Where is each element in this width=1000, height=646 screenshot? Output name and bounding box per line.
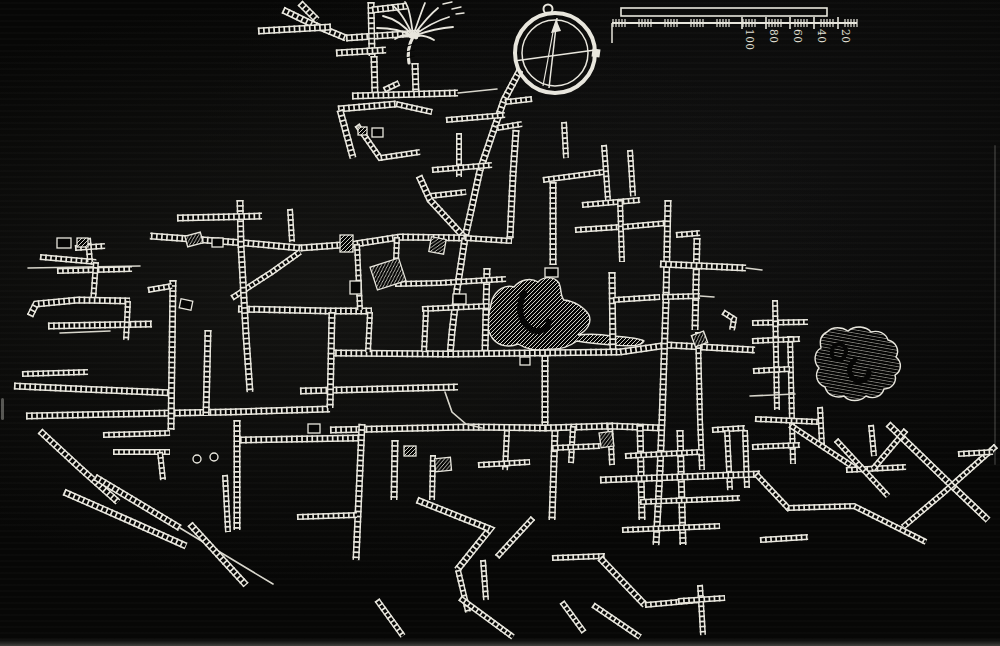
street-segment — [206, 330, 208, 415]
street-segment — [374, 56, 375, 96]
street-segment — [600, 474, 760, 480]
street-segment — [103, 433, 170, 435]
building — [308, 424, 320, 433]
street-segment — [510, 175, 513, 238]
scale-bar-outline — [621, 8, 827, 16]
street-segment — [330, 312, 332, 408]
street-segment — [180, 528, 273, 584]
street-segment — [660, 264, 746, 268]
street-segment — [543, 172, 604, 180]
street-segment — [593, 605, 640, 637]
compass-rose-icon — [514, 5, 601, 94]
street-segment — [171, 280, 173, 430]
east-hill-blob — [815, 327, 900, 401]
street-segment — [752, 322, 808, 323]
street-segment — [752, 339, 800, 341]
street-segment — [22, 372, 88, 374]
building — [404, 446, 416, 456]
street-segment — [505, 99, 532, 102]
building — [185, 232, 203, 247]
street-segment — [545, 426, 662, 428]
circle-mark — [210, 453, 218, 461]
building — [179, 299, 193, 310]
street-segment — [422, 306, 488, 309]
street-segment — [630, 150, 633, 196]
street-segment — [513, 130, 516, 175]
map-page: 10080604020 — [0, 0, 1000, 646]
street-segment — [340, 110, 353, 158]
street-segment — [678, 598, 725, 601]
street-segment — [377, 600, 403, 636]
street-segment — [600, 558, 645, 605]
street-segment — [60, 331, 110, 333]
street-segment — [465, 238, 512, 241]
street-segment — [460, 598, 513, 637]
street-segment — [290, 209, 292, 242]
street-segment — [240, 200, 241, 246]
street-segment — [356, 424, 362, 560]
street-segment — [483, 560, 486, 600]
street-segment — [625, 452, 700, 456]
street-segment — [190, 524, 246, 585]
street-segment — [662, 296, 700, 297]
street-segment — [753, 369, 790, 371]
street-segment — [676, 233, 700, 235]
map-canvas: 10080604020 — [0, 0, 1000, 646]
street-segment — [871, 425, 874, 456]
street-segment — [775, 300, 777, 410]
street-segment — [241, 246, 250, 392]
street-segment — [746, 268, 762, 270]
compass-needle-arrowhead — [551, 19, 561, 33]
street-segment — [357, 244, 360, 310]
street-segment — [48, 324, 152, 326]
street-segment — [622, 223, 668, 227]
scale-label: 60 — [792, 29, 804, 43]
street-segment — [372, 6, 407, 10]
street-segment — [552, 556, 605, 558]
street-segment — [958, 452, 993, 454]
street-segment — [238, 309, 372, 311]
street-segment — [352, 93, 458, 96]
scale-bar: 10080604020 — [612, 8, 857, 51]
building — [545, 268, 558, 277]
street-segment — [750, 394, 795, 396]
street-segment — [338, 104, 396, 109]
street-segment — [752, 445, 800, 447]
street-segment — [727, 430, 730, 490]
building — [77, 238, 88, 247]
street-segment — [297, 515, 357, 517]
street-segment — [225, 475, 228, 532]
building — [520, 357, 530, 365]
street-segment — [126, 301, 128, 340]
scale-label: 100 — [744, 29, 756, 51]
street-segment — [150, 236, 300, 248]
street-segment — [582, 200, 640, 205]
street-segment — [497, 518, 533, 557]
street-segment — [368, 312, 370, 352]
street-segment — [873, 430, 906, 469]
street-segment — [745, 430, 747, 488]
street-segment — [478, 462, 530, 465]
street-segment — [432, 455, 433, 500]
street-segment — [820, 407, 822, 446]
building — [434, 457, 451, 471]
street-segment — [564, 122, 566, 158]
street-segment — [562, 602, 584, 632]
street-segment — [384, 83, 399, 90]
building — [358, 127, 367, 135]
street-segment — [604, 145, 608, 200]
street-segment — [330, 352, 620, 354]
scale-label: 40 — [816, 29, 828, 43]
street-segment — [336, 50, 386, 53]
street-segment — [14, 386, 175, 393]
street-segment — [640, 425, 642, 520]
circle-mark — [193, 455, 201, 463]
street-segment — [760, 537, 808, 540]
street-segment — [723, 312, 734, 330]
street-segment — [30, 300, 130, 316]
street-segment — [620, 200, 622, 262]
street-segment — [660, 200, 668, 470]
street-segment — [430, 192, 466, 196]
street-segment — [695, 238, 697, 330]
street-segment — [622, 526, 720, 530]
street-segment — [756, 474, 790, 510]
street-segment — [300, 387, 458, 391]
building — [57, 238, 71, 248]
street-segment — [700, 296, 714, 297]
street-segment — [712, 428, 745, 430]
scale-label: 80 — [768, 29, 780, 43]
street-segment — [700, 585, 703, 635]
street-segment — [640, 498, 740, 502]
street-segment — [620, 345, 755, 352]
street-segment — [417, 500, 490, 570]
building — [453, 294, 466, 304]
street-segment — [160, 452, 163, 480]
building — [372, 128, 383, 137]
street-segment — [575, 227, 620, 230]
building — [340, 235, 353, 252]
street-segment — [458, 89, 497, 93]
street-segment — [613, 297, 660, 300]
street-segment — [440, 279, 506, 283]
building — [599, 431, 614, 448]
street-segment — [497, 124, 522, 128]
street-segment — [552, 430, 555, 520]
street-segment — [395, 283, 440, 284]
street-segment — [93, 262, 96, 302]
building — [429, 237, 446, 254]
central-pond-blob — [487, 278, 644, 351]
street-segment — [755, 419, 820, 422]
street-segment — [419, 176, 465, 238]
street-segment — [148, 286, 172, 290]
street-segment — [258, 27, 331, 31]
building — [212, 238, 223, 247]
street-segment — [445, 392, 482, 428]
building — [350, 281, 361, 294]
scale-label: 20 — [840, 29, 852, 43]
street-segment — [552, 446, 600, 448]
street-segment — [396, 104, 432, 112]
street-segment — [40, 431, 118, 502]
street-segment — [26, 409, 330, 416]
street-segment — [177, 216, 262, 218]
street-segment — [424, 310, 426, 352]
street-segment — [888, 424, 988, 520]
street-segment — [240, 438, 360, 440]
street-segment — [612, 272, 613, 355]
street-segment — [394, 440, 395, 500]
street-segment — [95, 477, 180, 528]
